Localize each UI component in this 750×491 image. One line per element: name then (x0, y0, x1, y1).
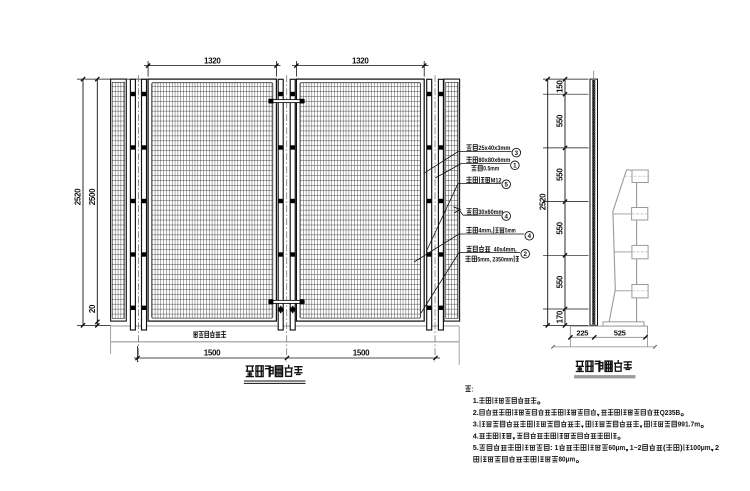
svg-text:4: 4 (504, 213, 508, 220)
svg-text:1320: 1320 (352, 56, 369, 65)
svg-text:2: 2 (715, 443, 719, 452)
svg-text:4mm,: 4mm, (478, 228, 492, 235)
svg-text:2520: 2520 (74, 188, 83, 205)
svg-text:80x80x6mm: 80x80x6mm (478, 157, 510, 164)
svg-text:25x40x3mm: 25x40x3mm (478, 145, 510, 152)
svg-text:5.: 5. (473, 443, 479, 452)
svg-text::: : (471, 386, 473, 393)
svg-text:991.7m: 991.7m (678, 420, 701, 429)
svg-text:3: 3 (515, 150, 519, 157)
svg-text:1500: 1500 (353, 348, 370, 357)
svg-text:30x60mm: 30x60mm (478, 209, 503, 216)
svg-text:1: 1 (513, 163, 517, 170)
svg-text:1.: 1. (473, 396, 479, 405)
svg-text:550: 550 (556, 221, 565, 234)
svg-text:225: 225 (576, 329, 589, 338)
svg-text:550: 550 (556, 168, 565, 181)
svg-text:5: 5 (504, 182, 508, 189)
svg-text:550: 550 (556, 275, 565, 288)
svg-text:550: 550 (556, 114, 565, 127)
svg-text:2500: 2500 (88, 188, 97, 205)
svg-text:3.: 3. (473, 420, 479, 429)
svg-text:20: 20 (88, 304, 97, 313)
svg-text:1320: 1320 (204, 56, 221, 65)
svg-text:150: 150 (556, 80, 565, 93)
svg-text:4: 4 (528, 233, 532, 240)
svg-text:60μm: 60μm (609, 443, 626, 452)
svg-text:1500: 1500 (204, 348, 221, 357)
svg-text:5mm: 5mm (505, 228, 516, 235)
svg-text:: 1: : 1 (550, 443, 559, 452)
svg-text:1~2: 1~2 (630, 443, 642, 452)
svg-text:80μm: 80μm (559, 455, 576, 464)
svg-text:Q235B: Q235B (660, 408, 681, 417)
svg-text:2: 2 (523, 251, 527, 258)
svg-text:0.5mm: 0.5mm (483, 166, 499, 173)
svg-text:170: 170 (556, 310, 565, 323)
svg-text:5mm, 2350mm: 5mm, 2350mm (477, 256, 513, 263)
svg-text:2.: 2. (473, 408, 479, 417)
svg-text:100μm: 100μm (690, 443, 711, 452)
svg-text:525: 525 (614, 329, 627, 338)
svg-text:4.: 4. (473, 431, 479, 440)
